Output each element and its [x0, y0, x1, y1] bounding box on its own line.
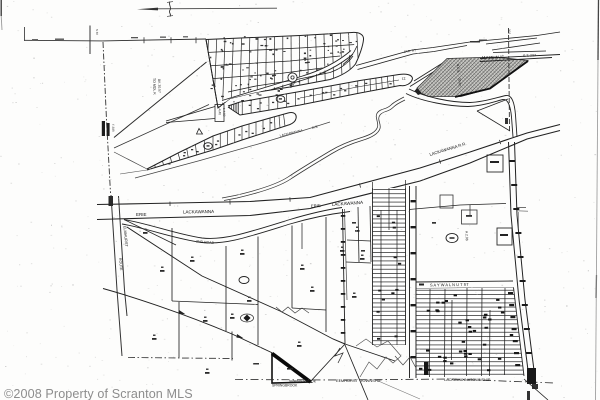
svg-text:A 2.98: A 2.98: [465, 231, 469, 241]
svg-text:N.E.B.: N.E.B.: [456, 64, 460, 73]
svg-text:S A Y W A L N U T ST: S A Y W A L N U T ST: [430, 282, 469, 288]
svg-text:SPRINGBROOK: SPRINGBROOK: [272, 384, 298, 388]
svg-text:STR. RT: STR. RT: [404, 48, 417, 54]
svg-text:N 88: N 88: [95, 29, 99, 35]
svg-text:ELMHURST: ELMHURST: [336, 378, 359, 383]
svg-text:S.T. 307: S.T. 307: [523, 54, 536, 58]
svg-text:AVE: AVE: [311, 124, 319, 130]
svg-text:SPRING BROOK: SPRING BROOK: [289, 380, 317, 384]
svg-text:LACKAWANNA: LACKAWANNA: [332, 200, 363, 207]
svg-text:302: 302: [507, 29, 511, 35]
svg-text:ERIE: ERIE: [136, 212, 147, 217]
svg-text:BK 30.57: BK 30.57: [157, 79, 161, 93]
svg-text:TOWNSHIP: TOWNSHIP: [360, 378, 382, 383]
svg-text:T-389: T-389: [111, 124, 115, 132]
svg-text:ERIE: ERIE: [311, 203, 321, 209]
svg-text:LACKAWANNA: LACKAWANNA: [444, 378, 471, 382]
svg-text:1-4.80: 1-4.80: [222, 108, 226, 117]
svg-text:30 AC: 30 AC: [458, 78, 462, 88]
svg-text:LACKAWANNA: LACKAWANNA: [183, 209, 214, 215]
svg-text:©2008 Property of Scranton MLS: ©2008 Property of Scranton MLS: [4, 387, 193, 400]
svg-text:MAIN AVE: MAIN AVE: [482, 54, 505, 60]
svg-text:12: 12: [401, 76, 406, 81]
svg-text:TO MDL K: TO MDL K: [152, 78, 157, 96]
svg-text:TOWNSHIP: TOWNSHIP: [470, 378, 491, 382]
svg-text:2ND ROAD: 2ND ROAD: [196, 240, 215, 246]
svg-text:ROUTE: ROUTE: [118, 258, 123, 271]
